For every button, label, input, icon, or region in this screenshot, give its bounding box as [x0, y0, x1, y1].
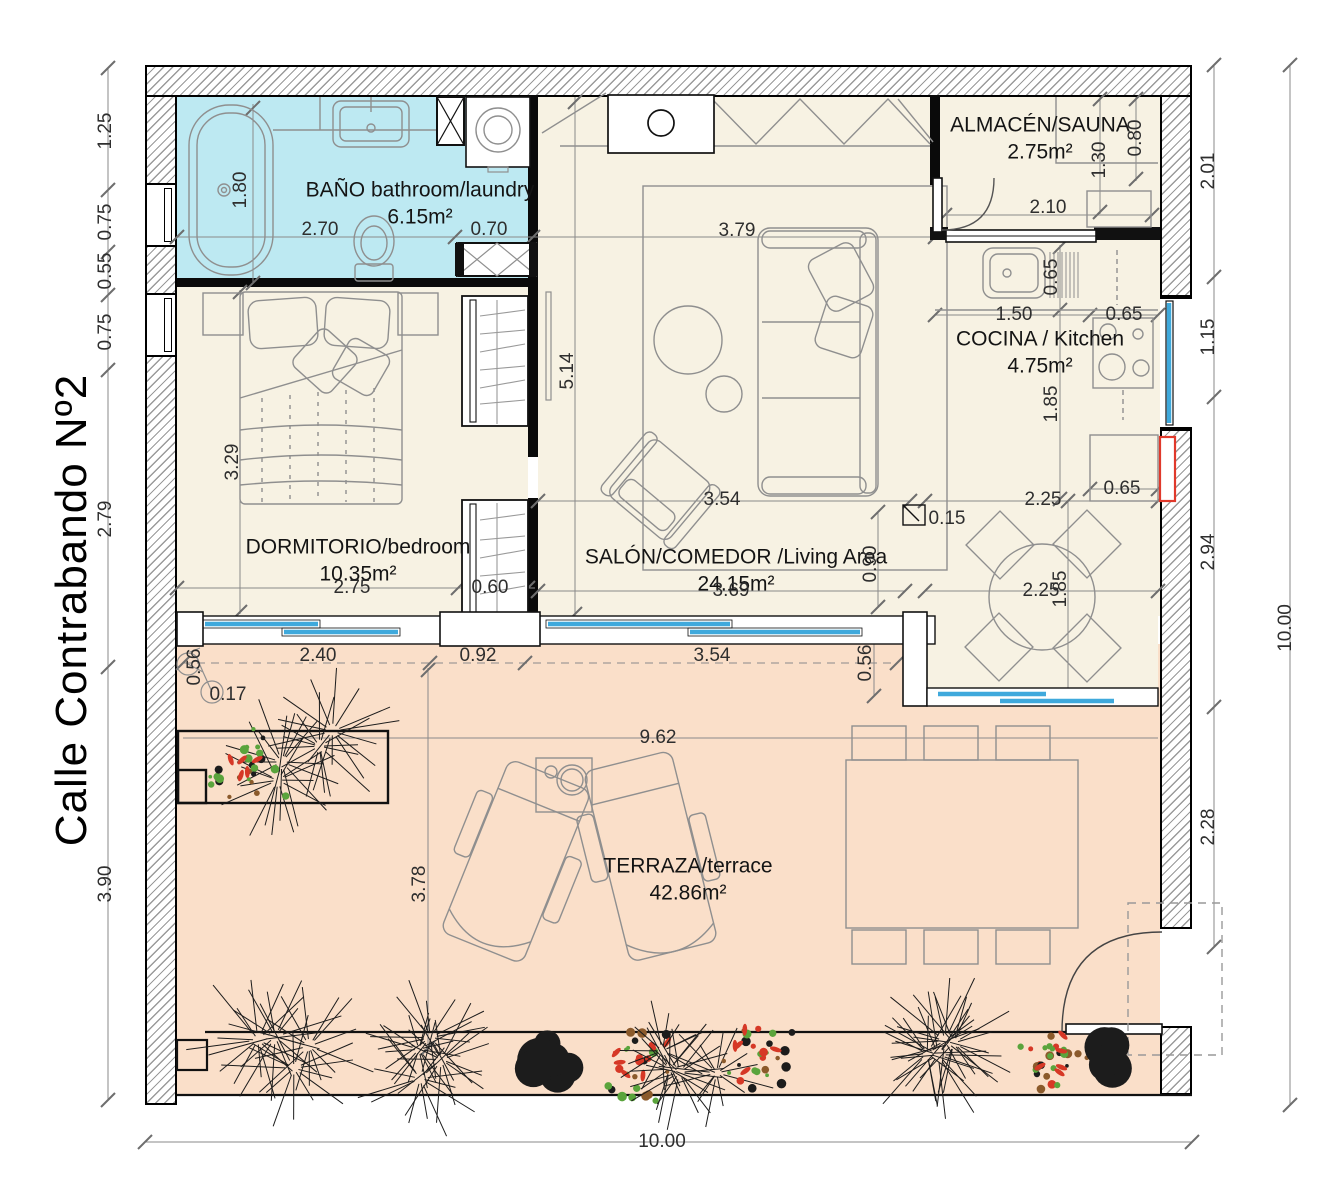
dimension-label: 1.30	[1089, 142, 1111, 179]
dimension-label: 2.79	[95, 501, 117, 538]
dimension-label: 2.40	[300, 645, 337, 667]
dimension-label: 0.92	[460, 645, 497, 667]
dimension-label: 0.70	[471, 219, 508, 241]
dimension-label: 0.65	[1041, 259, 1063, 296]
outdoor-table	[846, 760, 1078, 928]
room-area: 42.86m²	[603, 880, 772, 907]
dimension-label: 0.56	[184, 649, 206, 686]
almacen-door-leaf	[933, 178, 942, 232]
plant-bush	[515, 1030, 583, 1092]
sun-lounger-1	[424, 752, 609, 971]
dimension-label: 0.75	[95, 204, 117, 241]
dimension-label: 2.01	[1198, 153, 1220, 190]
dimension-label: 2.75	[334, 577, 371, 599]
dimension-label: 9.62	[640, 727, 677, 749]
dimension-label: 0.60	[472, 577, 509, 599]
dimension-label: 2.10	[1030, 197, 1067, 219]
room-label-terraza: TERRAZA/terrace 42.86m²	[603, 853, 772, 908]
room-label-cocina: COCINA / Kitchen 4.75m²	[956, 326, 1124, 381]
dimension-label: 0.80	[1125, 120, 1147, 157]
dimension-label: 0.75	[95, 314, 117, 351]
dimension-label: 3.54	[694, 645, 731, 667]
room-name: TERRAZA/terrace	[603, 853, 772, 880]
dimension-label: 0.90	[860, 546, 882, 583]
dimension-label: 0.65	[1104, 478, 1141, 500]
dimension-label: 0.65	[1106, 304, 1143, 326]
room-name: SALÓN/COMEDOR /Living Area	[585, 544, 887, 571]
dimension-label: 3.79	[719, 220, 756, 242]
dimension-label: 3.69	[713, 580, 750, 602]
dimension-label: 3.78	[409, 866, 431, 903]
dimension-label: 1.50	[996, 304, 1033, 326]
dimension-label: 1.80	[230, 172, 252, 209]
dimension-label: 10.00	[1275, 604, 1297, 652]
room-area: 4.75m²	[956, 353, 1124, 380]
plant-flower	[1017, 1029, 1089, 1093]
plant-spiky	[883, 978, 1010, 1119]
plant-spiky	[620, 1001, 773, 1130]
dimension-label: 2.28	[1198, 809, 1220, 846]
dimension-ticks	[101, 58, 1297, 1149]
dimension-label: 0.55	[95, 253, 117, 290]
dimension-label: 5.14	[557, 353, 579, 390]
dimension-label: 1.25	[95, 113, 117, 150]
room-name: COCINA / Kitchen	[956, 326, 1124, 353]
room-name: DORMITORIO/bedroom	[246, 534, 471, 561]
dimension-label: 3.54	[704, 489, 741, 511]
dimension-label: 2.70	[302, 219, 339, 241]
dimension-label: 1.85	[1041, 386, 1063, 423]
room-name: ALMACÉN/SAUNA	[950, 112, 1130, 139]
dimension-label: 1.85	[1050, 571, 1072, 608]
room-name: BAÑO bathroom/laundry	[306, 177, 535, 204]
floor-plan-canvas: BAÑO bathroom/laundry 6.15m² DORMITORIO/…	[0, 0, 1320, 1190]
radiator-red-box	[1160, 437, 1175, 501]
dimension-label: 0.17	[210, 684, 247, 706]
dimension-label: 2.25	[1025, 489, 1062, 511]
side-table	[536, 758, 592, 812]
plant-flower	[722, 1024, 796, 1093]
dimension-label: 0.56	[855, 645, 877, 682]
plant-spiky	[186, 980, 373, 1126]
dimension-label: 3.90	[95, 866, 117, 903]
dimension-label: 0.15	[929, 508, 966, 530]
wardrobes	[462, 292, 551, 620]
almacen-door-arc	[942, 178, 994, 230]
plant-bush	[1084, 1027, 1131, 1088]
street-label: Calle Contrabando Nº2	[47, 374, 97, 846]
dimension-label: 2.94	[1198, 534, 1220, 571]
dimension-label: 10.00	[638, 1131, 686, 1153]
dimension-label: 1.15	[1198, 319, 1220, 356]
dimension-label: 3.29	[222, 444, 244, 481]
terrace-door-arc	[1062, 932, 1162, 1032]
plant-spiky	[358, 980, 489, 1136]
